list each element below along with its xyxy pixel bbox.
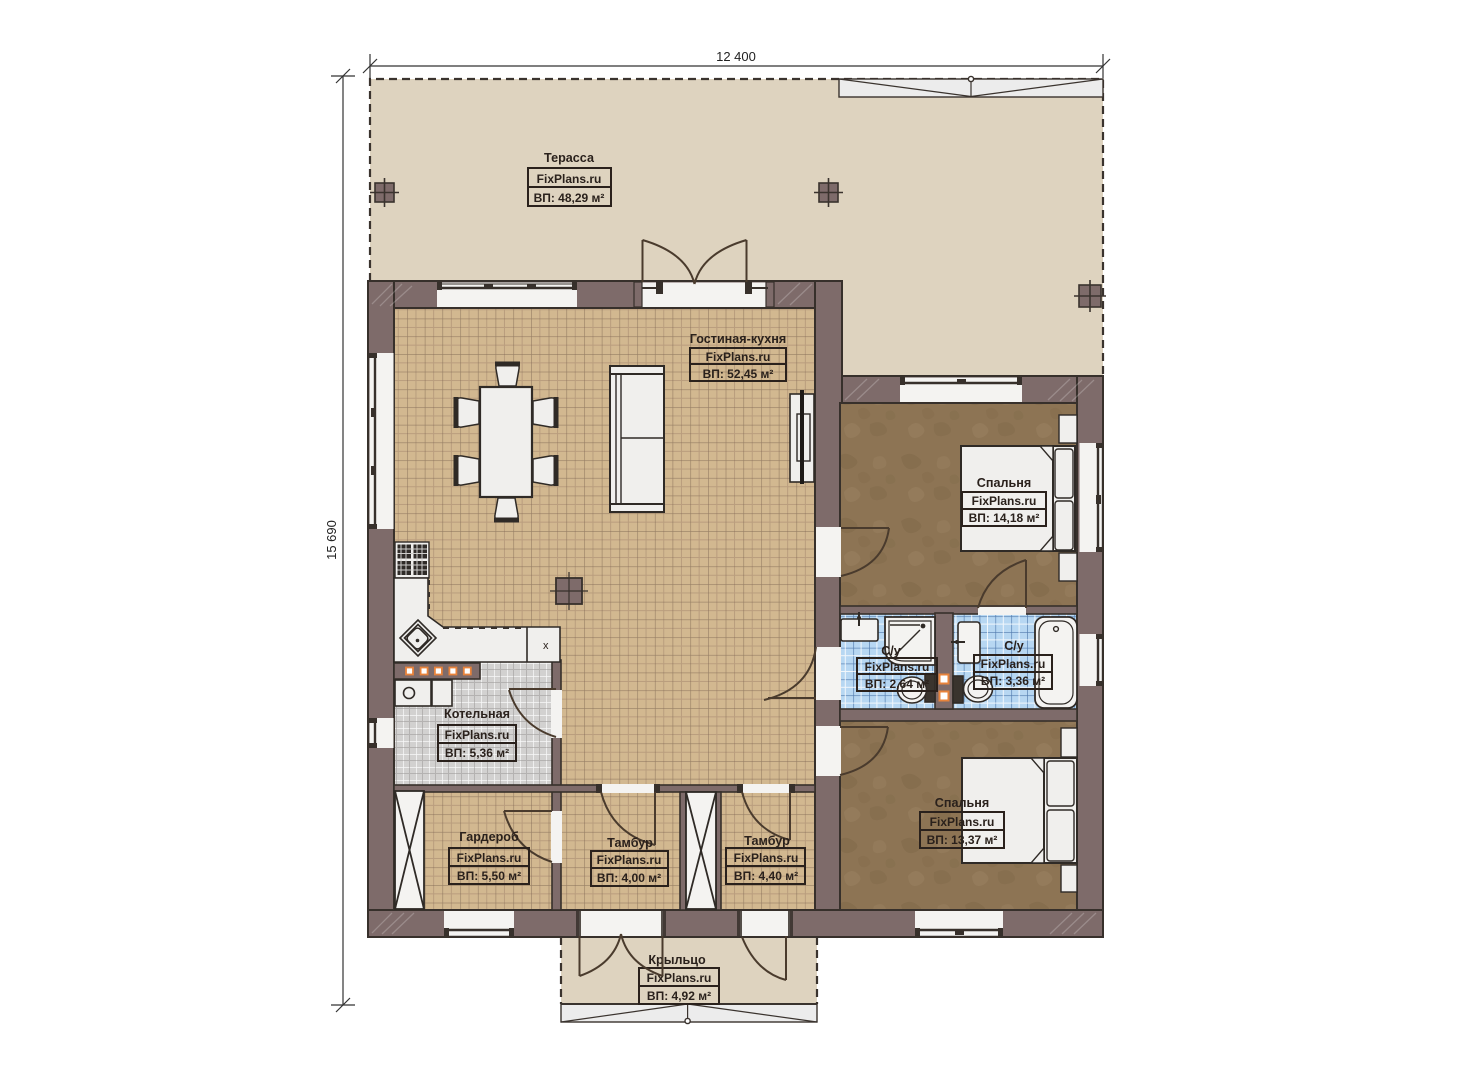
- svg-text:15 690: 15 690: [324, 520, 339, 560]
- svg-text:ВП: 52,45 м²: ВП: 52,45 м²: [703, 367, 774, 381]
- svg-text:Гардероб: Гардероб: [459, 830, 519, 844]
- svg-text:FixPlans.ru: FixPlans.ru: [972, 494, 1037, 508]
- svg-text:FixPlans.ru: FixPlans.ru: [981, 657, 1046, 671]
- svg-text:ВП: 5,50 м²: ВП: 5,50 м²: [457, 869, 521, 883]
- svg-text:ВП: 5,36 м²: ВП: 5,36 м²: [445, 746, 509, 760]
- svg-text:Тамбур: Тамбур: [744, 834, 790, 848]
- svg-text:ВП: 3,36 м²: ВП: 3,36 м²: [981, 674, 1045, 688]
- svg-text:Крыльцо: Крыльцо: [648, 953, 706, 967]
- svg-text:FixPlans.ru: FixPlans.ru: [457, 851, 522, 865]
- svg-text:ВП: 4,92 м²: ВП: 4,92 м²: [647, 989, 711, 1003]
- svg-text:FixPlans.ru: FixPlans.ru: [706, 350, 771, 364]
- svg-text:12 400: 12 400: [716, 49, 756, 64]
- svg-text:ВП: 2,64 м²: ВП: 2,64 м²: [865, 677, 929, 691]
- svg-text:Гостиная-кухня: Гостиная-кухня: [690, 332, 787, 346]
- svg-text:FixPlans.ru: FixPlans.ru: [537, 172, 602, 186]
- svg-text:ВП: 4,40 м²: ВП: 4,40 м²: [734, 869, 798, 883]
- svg-text:FixPlans.ru: FixPlans.ru: [734, 851, 799, 865]
- svg-text:x: x: [543, 640, 549, 652]
- svg-text:ВП: 48,29 м²: ВП: 48,29 м²: [534, 191, 605, 205]
- svg-text:Котельная: Котельная: [444, 707, 510, 721]
- svg-text:ВП: 4,00 м²: ВП: 4,00 м²: [597, 871, 661, 885]
- svg-text:Спальня: Спальня: [935, 796, 989, 810]
- svg-text:Спальня: Спальня: [977, 476, 1031, 490]
- svg-text:ВП: 13,37 м²: ВП: 13,37 м²: [927, 833, 998, 847]
- svg-text:С/у: С/у: [1004, 639, 1024, 653]
- svg-text:FixPlans.ru: FixPlans.ru: [865, 660, 930, 674]
- svg-text:FixPlans.ru: FixPlans.ru: [930, 815, 995, 829]
- svg-text:Тамбур: Тамбур: [607, 836, 653, 850]
- svg-text:FixPlans.ru: FixPlans.ru: [597, 853, 662, 867]
- svg-text:С/у: С/у: [881, 644, 901, 658]
- svg-text:Терасса: Терасса: [544, 151, 595, 165]
- svg-text:ВП: 14,18 м²: ВП: 14,18 м²: [969, 511, 1040, 525]
- svg-text:FixPlans.ru: FixPlans.ru: [445, 728, 510, 742]
